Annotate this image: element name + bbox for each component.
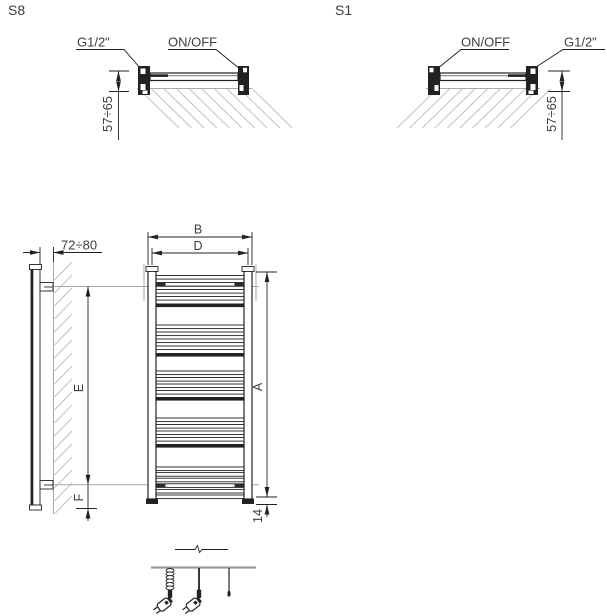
mount-bottom-letter: F <box>72 493 86 501</box>
rung <box>156 339 244 343</box>
left-top-cap <box>146 267 158 272</box>
s8-depth-value: 57÷65 <box>100 96 115 132</box>
profile-bottom-cap <box>30 505 42 510</box>
rung <box>156 297 244 301</box>
bare-cable-option <box>228 568 231 597</box>
rung <box>156 276 244 280</box>
right-bottom-cap <box>242 499 254 505</box>
s8-top-view: S8 G1/2" ON/OFF 57÷ <box>8 2 292 140</box>
front-bracket-tab <box>157 283 166 286</box>
break-line <box>175 546 228 553</box>
rung <box>156 378 244 382</box>
radiator-dimension-drawing: S8 G1/2" ON/OFF 57÷ <box>0 0 607 616</box>
s8-switch-leader <box>168 50 240 70</box>
overall-width-letter: B <box>194 223 202 237</box>
s1-switch-leader <box>437 50 509 70</box>
height-dimension: A <box>251 272 277 497</box>
rung <box>156 495 244 499</box>
variant-label-s1: S1 <box>335 2 352 18</box>
front-view: B D A 1 <box>144 223 277 523</box>
front-bracket-tab <box>157 484 166 487</box>
rung <box>156 353 244 357</box>
left-vertical-tube <box>148 271 156 499</box>
right-top-cap <box>242 267 254 272</box>
rung <box>156 391 244 395</box>
bottom-offset-value: 14 <box>251 509 265 523</box>
cable-end-tip <box>228 591 231 597</box>
power-plug-icon <box>152 596 174 616</box>
rung <box>156 397 244 401</box>
rung <box>156 473 244 477</box>
upper-wall-bracket <box>40 283 53 292</box>
s1-top-view: S1 ON/OFF G1/2" 57÷65 <box>335 2 605 140</box>
power-cable-options <box>151 546 256 616</box>
rung <box>156 290 244 294</box>
mount-bottom-dimension: F <box>72 485 97 521</box>
straight-cable-plug-option <box>181 568 203 615</box>
rung <box>156 371 244 375</box>
rung <box>156 484 244 488</box>
axis-width-letter: D <box>193 239 202 253</box>
rung <box>156 478 244 482</box>
s8-connection-label: G1/2" <box>77 35 110 50</box>
wall-clearance-value: 72÷80 <box>61 238 97 253</box>
s1-depth-value: 57÷65 <box>544 96 559 132</box>
s1-switch-block <box>428 66 440 95</box>
rung <box>156 489 244 493</box>
axis-width-dimension: D <box>152 239 248 265</box>
rung <box>156 346 244 350</box>
s1-depth-dimension: 57÷65 <box>544 71 570 140</box>
front-bracket-tab <box>235 283 244 286</box>
s8-connection-leader <box>76 50 141 70</box>
bottom-offset-dimension: 14 <box>251 505 277 523</box>
mount-span-letter: E <box>72 384 86 392</box>
rung <box>156 332 244 336</box>
rung <box>156 444 244 448</box>
front-bracket-tab <box>235 484 244 487</box>
rung <box>156 283 244 287</box>
s8-depth-dimension: 57÷65 <box>100 71 129 140</box>
wall-clearance-dimension: 72÷80 <box>23 238 102 265</box>
wall-hatch <box>55 262 73 514</box>
height-letter: A <box>251 382 265 391</box>
power-plug-icon <box>181 596 203 616</box>
s8-switch-label: ON/OFF <box>168 35 217 50</box>
mount-span-dimension: E <box>72 287 88 485</box>
cable-sleeve <box>168 590 172 599</box>
rung <box>156 384 244 388</box>
rung <box>156 325 244 329</box>
s8-connection-block <box>138 66 150 95</box>
wall-hatch <box>139 89 292 128</box>
rung <box>156 438 244 442</box>
s1-connection-block <box>526 66 538 95</box>
rung <box>156 418 244 422</box>
technical-drawing-page: S8 G1/2" ON/OFF 57÷ <box>0 0 607 616</box>
spiral-cable-icon <box>166 569 174 590</box>
variant-label-s8: S8 <box>8 2 25 18</box>
rung <box>156 467 244 471</box>
s8-switch-block <box>238 66 249 95</box>
radiator-rungs <box>156 276 244 499</box>
s1-connection-label: G1/2" <box>564 35 597 50</box>
lower-wall-bracket <box>40 481 53 490</box>
rung <box>156 425 244 429</box>
cable-sleeve <box>197 590 201 599</box>
heating-element-mark <box>508 74 526 77</box>
heating-element-mark <box>150 74 168 77</box>
left-bottom-cap <box>146 499 158 505</box>
s1-connection-leader <box>533 50 605 70</box>
rung <box>156 304 244 308</box>
rung <box>156 431 244 435</box>
spiral-cable-plug-option <box>152 569 174 616</box>
s1-switch-label: ON/OFF <box>461 35 510 50</box>
profile-top-cap <box>30 265 42 270</box>
